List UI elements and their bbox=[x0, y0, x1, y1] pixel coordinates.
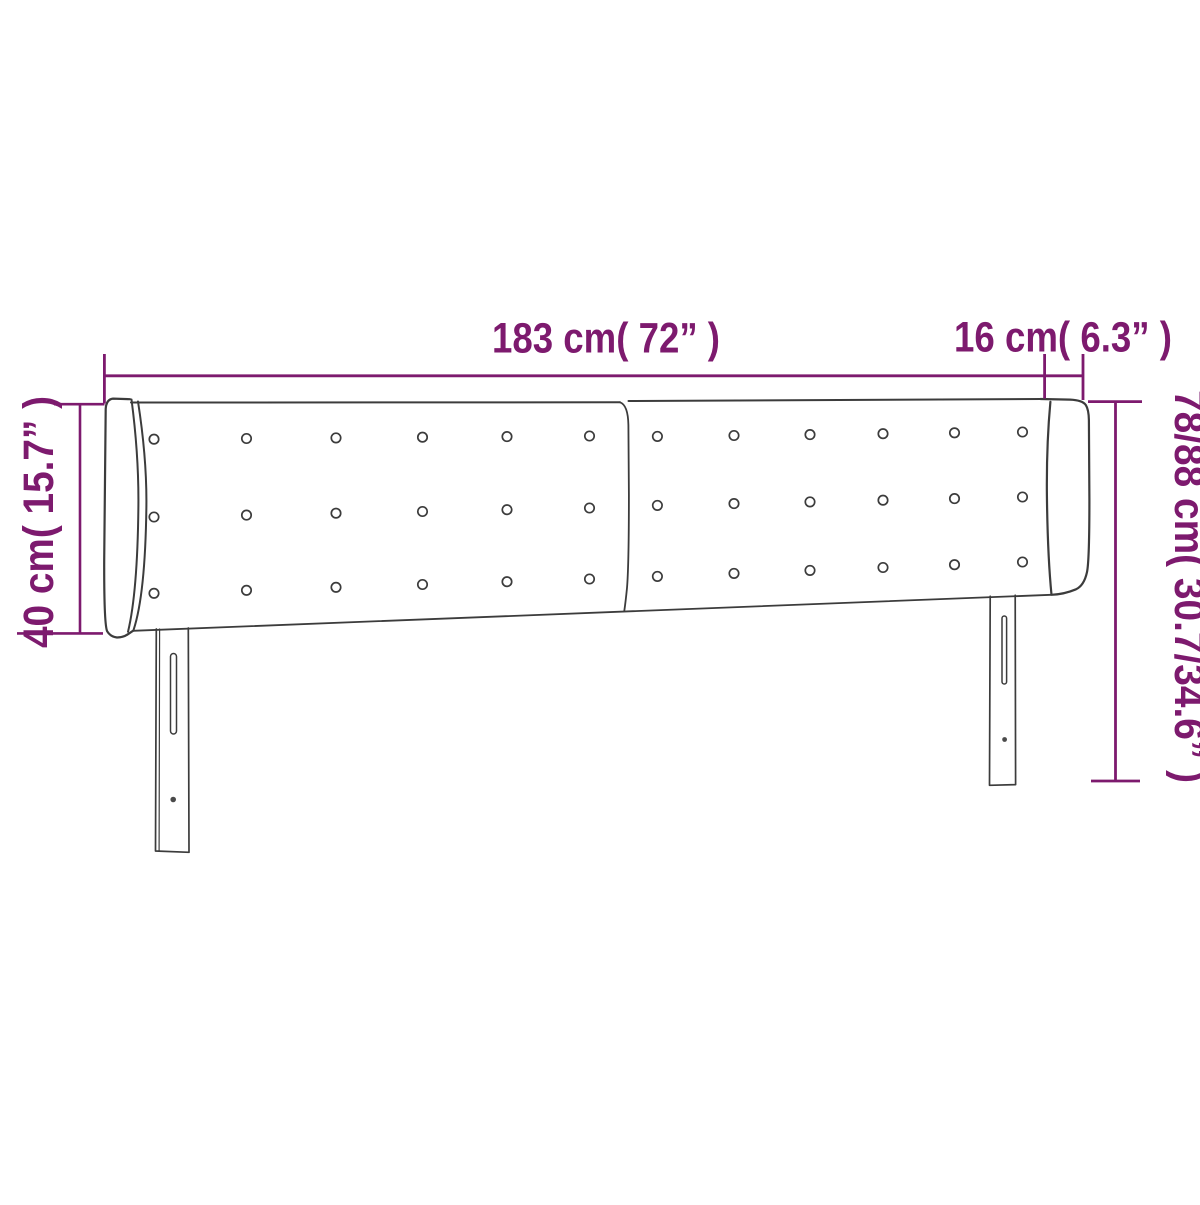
svg-text:78/88 cm( 30.7/34.6” ): 78/88 cm( 30.7/34.6” ) bbox=[1165, 390, 1200, 783]
svg-text:16 cm( 6.3” ): 16 cm( 6.3” ) bbox=[954, 314, 1172, 362]
svg-text:183 cm( 72” ): 183 cm( 72” ) bbox=[492, 315, 720, 363]
svg-text:40 cm( 15.7” ): 40 cm( 15.7” ) bbox=[15, 396, 63, 648]
